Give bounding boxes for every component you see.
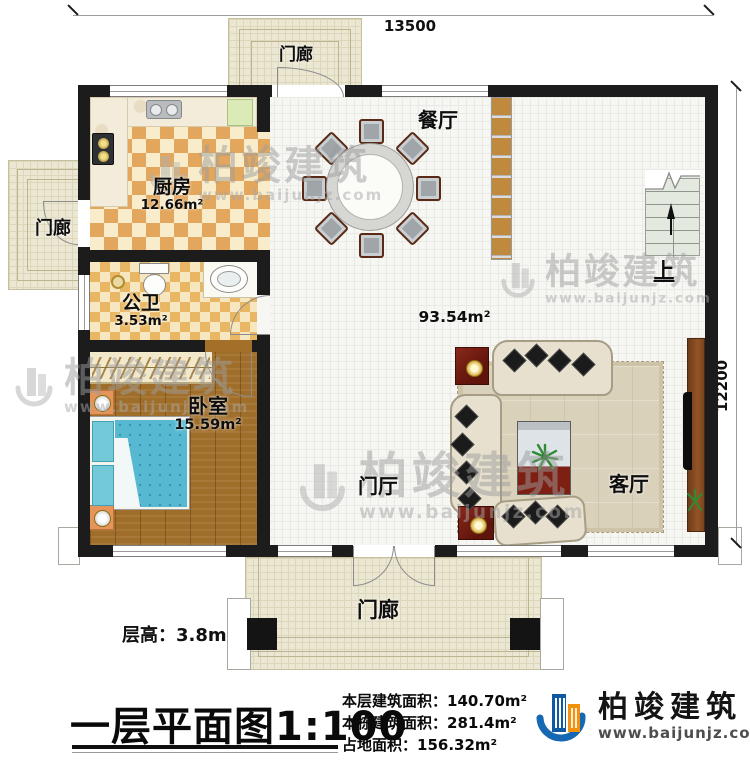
room-name: 门廊 (350, 599, 406, 622)
dimension-tick (703, 4, 714, 15)
toilet-tank (139, 263, 169, 274)
window (278, 545, 332, 557)
headboard-cushion (92, 465, 114, 506)
side-table (458, 506, 494, 540)
stove (92, 133, 114, 165)
stat-label: 占地面积： (342, 736, 417, 754)
wall (705, 85, 718, 557)
brand-logo-icon (530, 688, 592, 746)
door-leaf (230, 334, 270, 335)
plan-title-text: 一层平面图 (70, 704, 275, 750)
dining-label: 餐厅 (408, 109, 468, 131)
room-area: 15.59m² (158, 417, 258, 434)
stair-divider (673, 217, 674, 257)
wall (257, 97, 270, 132)
room-area: 12.66m² (122, 198, 222, 214)
stat-value: 281.4m² (447, 714, 517, 732)
wall (257, 352, 270, 545)
door-leaf (251, 352, 252, 397)
porch-step-line (246, 637, 541, 638)
bedside-lamp (94, 510, 111, 527)
porch-pillar (247, 618, 277, 650)
brand-logo: 柏竣建筑 www.baijunjz.com (530, 688, 750, 746)
room-area: 93.54m² (412, 309, 497, 327)
wall-pad (58, 527, 80, 565)
door-leaf (434, 546, 435, 586)
stair-break-line (645, 170, 700, 190)
coffee-table (517, 421, 571, 495)
door-opening (78, 200, 90, 247)
kitchen-label: 厨房 12.66m² (122, 177, 222, 213)
dining-chair (416, 176, 441, 201)
dimension-line-top (73, 15, 713, 16)
sink-bowl (150, 104, 162, 116)
room-name: 门廊 (27, 219, 79, 239)
porch-column-base (540, 598, 564, 670)
stat-row: 本层建筑面积：140.70m² (342, 690, 527, 712)
stat-row: 本栋建筑面积：281.4m² (342, 712, 527, 734)
bedside-lamp (94, 395, 111, 412)
living-label: 客厅 (598, 473, 660, 495)
dining-chair (359, 233, 384, 258)
window (113, 545, 226, 557)
room-name: 门廊 (273, 46, 319, 65)
room-name: 门厅 (347, 475, 409, 497)
door-leaf (277, 67, 278, 97)
cutting-board (227, 99, 253, 126)
door-opening (205, 340, 252, 352)
stat-value: 140.70m² (447, 692, 527, 710)
room-name: 客厅 (598, 473, 660, 495)
kitchen-sink (146, 100, 182, 119)
room-name: 餐厅 (408, 109, 468, 131)
dining-chair (302, 176, 327, 201)
room-name: 厨房 (122, 177, 222, 198)
porch-step-line (246, 651, 541, 652)
stat-row: 占地面积：156.32m² (342, 734, 527, 756)
hanger-rail (92, 357, 210, 379)
stair-arrow-stem (670, 217, 672, 235)
room-name: 上 (650, 260, 678, 283)
stat-label: 本栋建筑面积： (342, 714, 447, 732)
dimension-label-top: 13500 (375, 17, 445, 35)
wall (257, 262, 270, 297)
brand-url: www.baijunjz.com (598, 724, 750, 742)
window (588, 545, 674, 557)
dimension-line-right (736, 88, 737, 545)
window (382, 85, 488, 97)
porch-left-label: 门廊 (27, 219, 79, 239)
room-name: 卧室 (158, 395, 258, 417)
room-name: 公卫 (96, 293, 186, 314)
table-lamp (466, 360, 483, 377)
headboard-cushion (92, 421, 114, 462)
dining-table-top (337, 154, 403, 220)
door-leaf (43, 201, 78, 202)
window (457, 545, 561, 557)
tv (683, 392, 692, 470)
open-area-label: 93.54m² (412, 309, 497, 327)
plant-icon (530, 442, 560, 472)
burner (98, 138, 109, 149)
window (78, 275, 90, 330)
rail-line (90, 367, 212, 368)
wardrobe (90, 352, 212, 384)
porch-top-label: 门廊 (273, 46, 319, 65)
basin-bowl (217, 271, 241, 287)
window (110, 85, 227, 97)
wall (90, 250, 270, 262)
watermark-logo-icon (14, 364, 54, 410)
porch-pillar (510, 618, 540, 650)
table-lamp (470, 517, 487, 534)
stairs-up-label: 上 (650, 260, 678, 283)
area-statistics: 本层建筑面积：140.70m² 本栋建筑面积：281.4m² 占地面积：156.… (342, 690, 527, 756)
dining-chair (359, 119, 384, 144)
bathroom-label: 公卫 3.53m² (96, 293, 186, 329)
sink-bowl (166, 104, 178, 116)
floor-drain (111, 275, 125, 289)
dimension-tick (67, 4, 78, 15)
washbasin (210, 265, 248, 293)
burner (98, 151, 109, 162)
stat-label: 本层建筑面积： (342, 692, 447, 710)
floor-height-note: 层高：3.8m (122, 621, 227, 647)
foyer-label: 门厅 (347, 475, 409, 497)
room-area: 3.53m² (96, 314, 186, 330)
nightstand (88, 390, 114, 415)
stat-value: 156.32m² (417, 736, 497, 754)
porch-bottom-label: 门廊 (350, 599, 406, 622)
bedroom-label: 卧室 15.59m² (158, 395, 258, 434)
nightstand (88, 505, 114, 530)
door-leaf (353, 546, 354, 586)
brand-name: 柏竣建筑 (598, 692, 750, 724)
side-table (455, 347, 489, 385)
title-underline-thin (72, 752, 338, 753)
floor-plan: 13500 12200 (0, 0, 750, 763)
title-underline (72, 745, 338, 749)
plant-icon (686, 488, 704, 514)
wood-partition-screen (491, 97, 512, 260)
wall (90, 340, 205, 352)
wall (252, 340, 270, 352)
